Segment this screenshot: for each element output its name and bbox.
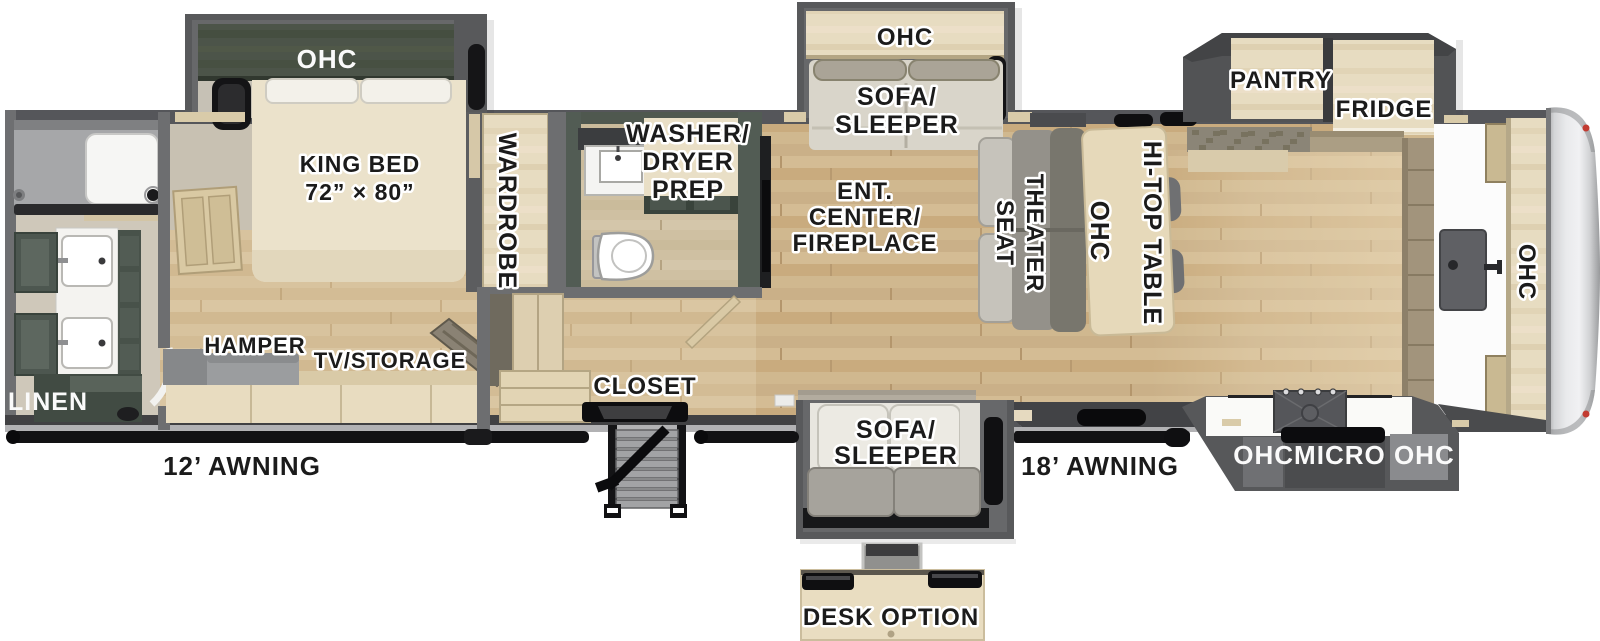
svg-text:SOFA/: SOFA/ xyxy=(856,416,936,444)
svg-text:THEATER: THEATER xyxy=(1021,174,1048,293)
svg-text:TV/STORAGE: TV/STORAGE xyxy=(314,348,467,373)
svg-text:HI-TOP TABLE: HI-TOP TABLE xyxy=(1138,141,1166,325)
svg-text:18’ AWNING: 18’ AWNING xyxy=(1021,451,1179,481)
svg-text:KING BED: KING BED xyxy=(300,151,420,177)
svg-text:DESK OPTION: DESK OPTION xyxy=(803,604,979,631)
svg-text:PREP: PREP xyxy=(652,176,724,204)
svg-text:OHC: OHC xyxy=(877,24,933,51)
svg-text:PANTRY: PANTRY xyxy=(1230,67,1332,94)
svg-text:ENT.: ENT. xyxy=(837,178,893,205)
svg-text:72” × 80”: 72” × 80” xyxy=(305,179,414,205)
svg-text:SLEEPER: SLEEPER xyxy=(834,442,958,470)
svg-text:LINEN: LINEN xyxy=(8,388,88,416)
svg-text:OHC: OHC xyxy=(1513,244,1540,300)
svg-text:OHC: OHC xyxy=(297,44,358,74)
svg-text:DRYER: DRYER xyxy=(642,148,734,176)
svg-text:CENTER/: CENTER/ xyxy=(809,204,921,231)
svg-text:WARDROBE: WARDROBE xyxy=(493,133,521,290)
svg-text:SEAT: SEAT xyxy=(991,200,1018,266)
svg-text:SLEEPER: SLEEPER xyxy=(835,111,959,139)
svg-text:CLOSET: CLOSET xyxy=(593,373,696,400)
svg-text:FIREPLACE: FIREPLACE xyxy=(792,230,937,257)
svg-text:HAMPER: HAMPER xyxy=(204,333,305,358)
svg-text:OHCMICRO OHC: OHCMICRO OHC xyxy=(1233,440,1454,470)
svg-text:SOFA/: SOFA/ xyxy=(857,83,937,111)
svg-text:OHC: OHC xyxy=(1085,201,1115,262)
svg-text:FRIDGE: FRIDGE xyxy=(1336,96,1433,123)
svg-text:WASHER/: WASHER/ xyxy=(626,120,750,148)
svg-text:12’ AWNING: 12’ AWNING xyxy=(163,451,321,481)
